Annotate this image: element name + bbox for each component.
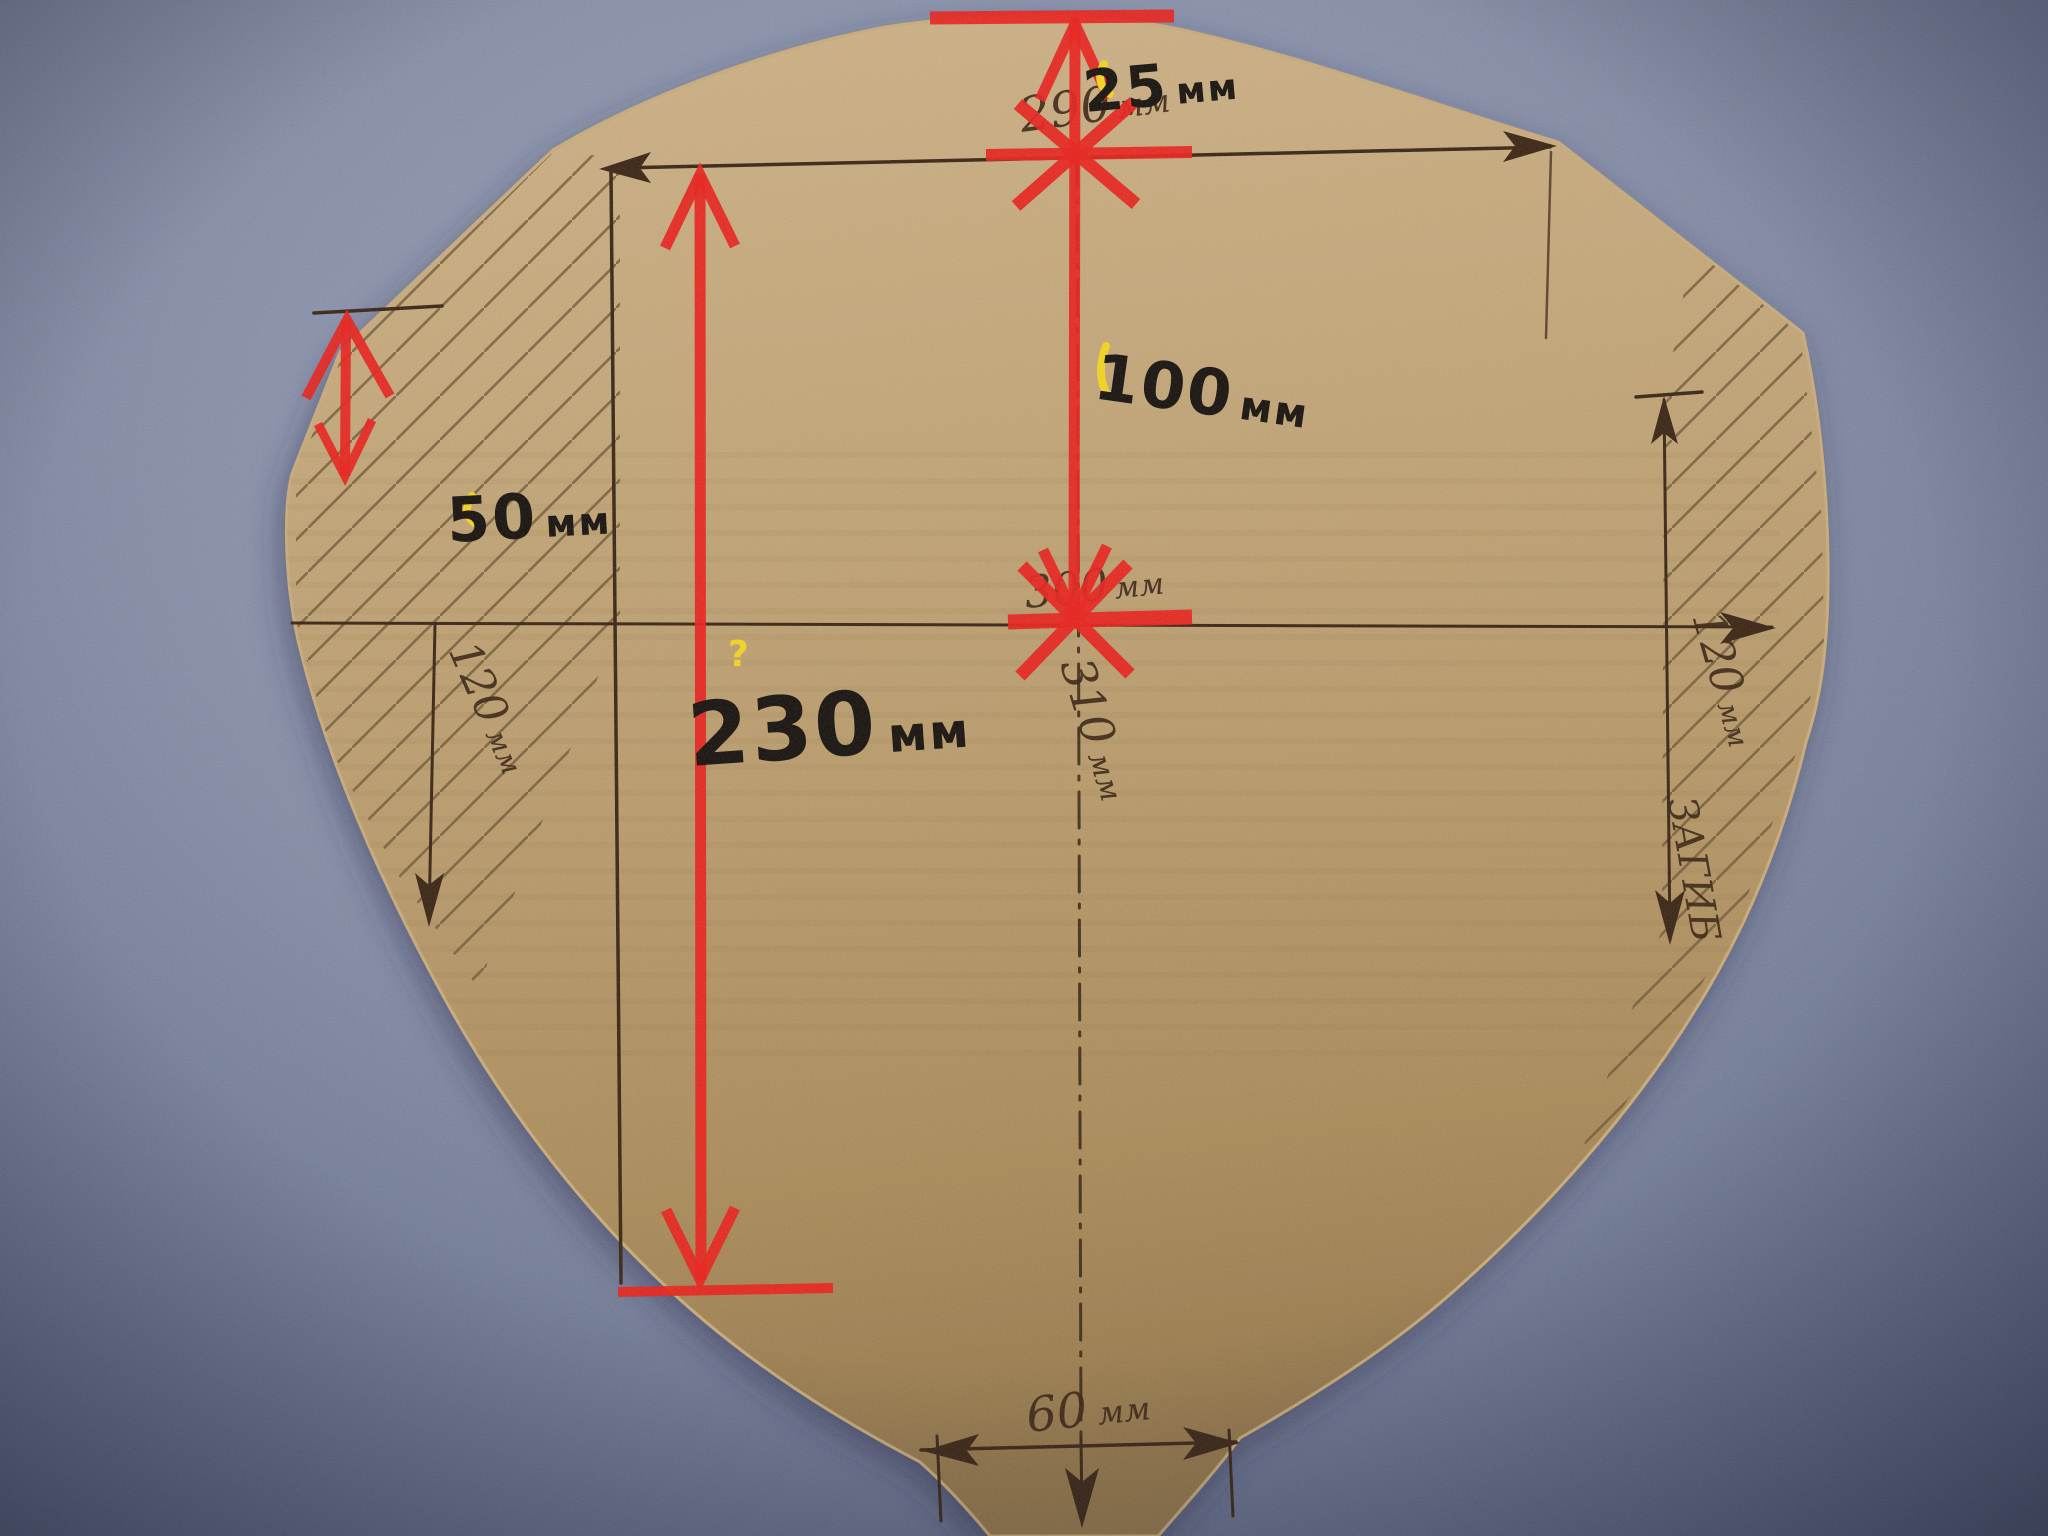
photo-of-cardboard-template: 290мм 300мм 310мм 120мм 120мм З — [0, 0, 2048, 1536]
scene: 290мм 300мм 310мм 120мм 120мм З — [0, 0, 2048, 1536]
vignette-overlay — [0, 0, 2048, 1536]
